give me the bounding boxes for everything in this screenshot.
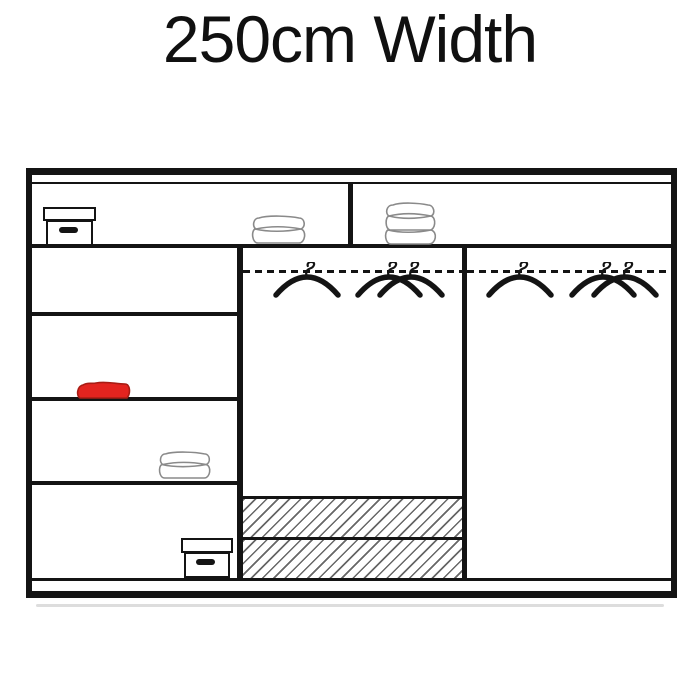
left-shelf-line-3 [32, 481, 237, 485]
hanger-icon [272, 262, 342, 300]
storage-box-lid [181, 538, 233, 553]
drawer-hatch-2 [243, 540, 462, 578]
drawer-hatch-1 [243, 499, 462, 537]
left-shelf-line-1 [32, 312, 237, 316]
frame-right [671, 168, 677, 598]
hanger-icon [590, 262, 660, 300]
left-shelf-line-2 [32, 397, 237, 401]
storage-box-body [184, 552, 230, 578]
folded-towel-icon [157, 449, 213, 481]
page: 250cm Width [0, 0, 700, 700]
frame-left [26, 168, 32, 598]
frame-top [26, 168, 677, 175]
red-folded-item [75, 381, 133, 400]
hanger-icon [485, 262, 555, 300]
storage-box-body [46, 220, 93, 246]
hanger-icon [376, 262, 446, 300]
storage-box-handle [59, 227, 78, 233]
wardrobe-shadow [36, 604, 664, 607]
page-title: 250cm Width [0, 6, 700, 72]
top-section-divider [348, 184, 353, 246]
storage-box-lid [43, 207, 96, 221]
folded-towel-icon [250, 213, 308, 246]
frame-bottom [26, 591, 677, 598]
bottom-plinth-line [32, 578, 671, 581]
storage-box-handle [196, 559, 215, 565]
folded-stack-icon [383, 201, 438, 246]
middle-right-divider [462, 246, 467, 578]
